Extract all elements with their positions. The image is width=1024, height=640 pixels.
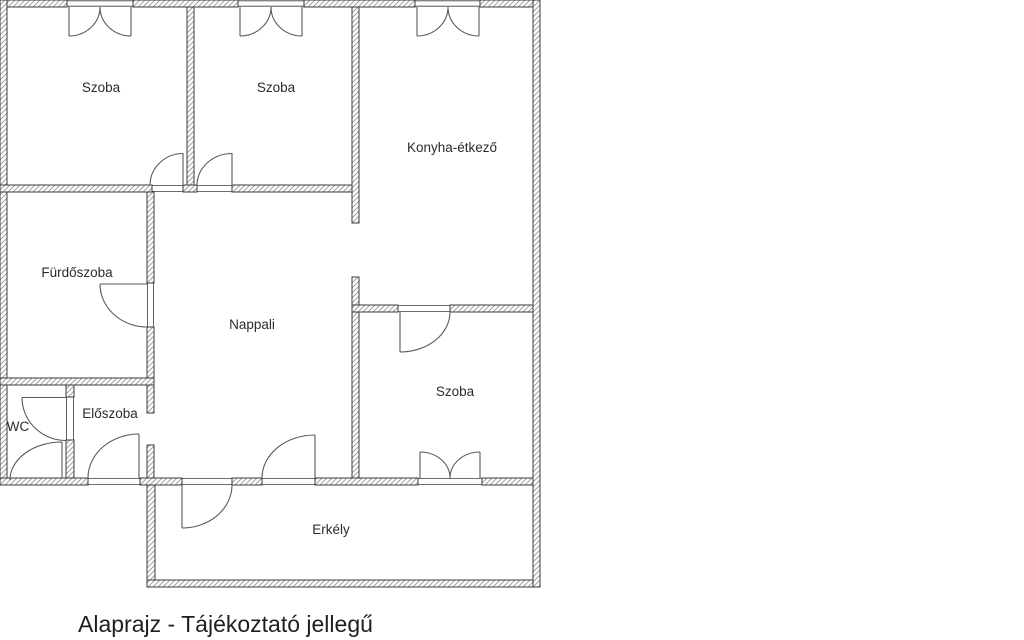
wall-balcony-left (147, 485, 155, 580)
wall-int-bedrooms-1 (0, 185, 152, 192)
wall-balcony-bottom (147, 580, 533, 587)
room-label-wc: WC (7, 419, 30, 434)
wall-int-bath-3 (147, 445, 154, 478)
wall-int-kitchen-1 (352, 7, 359, 223)
wall-ext-bottom-1 (0, 478, 88, 485)
floor-plan-page: Szoba Szoba Konyha-étkező Fürdőszoba Nap… (0, 0, 1024, 640)
wall-int-bath-1 (147, 192, 154, 283)
wall-ext-top-4 (480, 0, 540, 7)
wall-ext-top-2 (133, 0, 238, 7)
room-label-erkely: Erkély (312, 522, 350, 537)
wall-ext-top-1 (0, 0, 67, 7)
wall-int-szoba3-top-2 (450, 305, 533, 312)
room-label-szoba1: Szoba (82, 80, 121, 95)
wall-ext-bottom-3 (232, 478, 262, 485)
wall-int-bedrooms-3 (232, 185, 359, 192)
wall-ext-top-3 (304, 0, 415, 7)
wall-ext-right (533, 0, 540, 587)
wall-int-wc-2 (66, 440, 74, 478)
room-label-furdoszoba: Fürdőszoba (41, 265, 113, 280)
wall-ext-bottom-5 (482, 478, 533, 485)
wall-int-bath-bottom (0, 378, 154, 385)
room-label-szoba2: Szoba (257, 80, 296, 95)
wall-int-bedroom-divider (187, 7, 194, 185)
floor-plan-drawing: Szoba Szoba Konyha-étkező Fürdőszoba Nap… (0, 0, 1024, 640)
wall-int-wc-1 (66, 385, 74, 397)
wall-ext-left (0, 0, 7, 485)
room-label-szoba3: Szoba (436, 384, 475, 399)
wall-ext-bottom-4 (315, 478, 418, 485)
wall-int-szoba3-top-1 (352, 305, 398, 312)
plan-caption: Alaprajz - Tájékoztató jellegű (78, 611, 373, 637)
room-label-nappali: Nappali (229, 317, 275, 332)
wall-ext-bottom-2 (140, 478, 182, 485)
wall-int-bath-2 (147, 327, 154, 413)
wall-int-bedrooms-2 (183, 185, 197, 192)
room-label-eloszoba: Előszoba (82, 406, 138, 421)
room-label-konyha: Konyha-étkező (407, 140, 497, 155)
